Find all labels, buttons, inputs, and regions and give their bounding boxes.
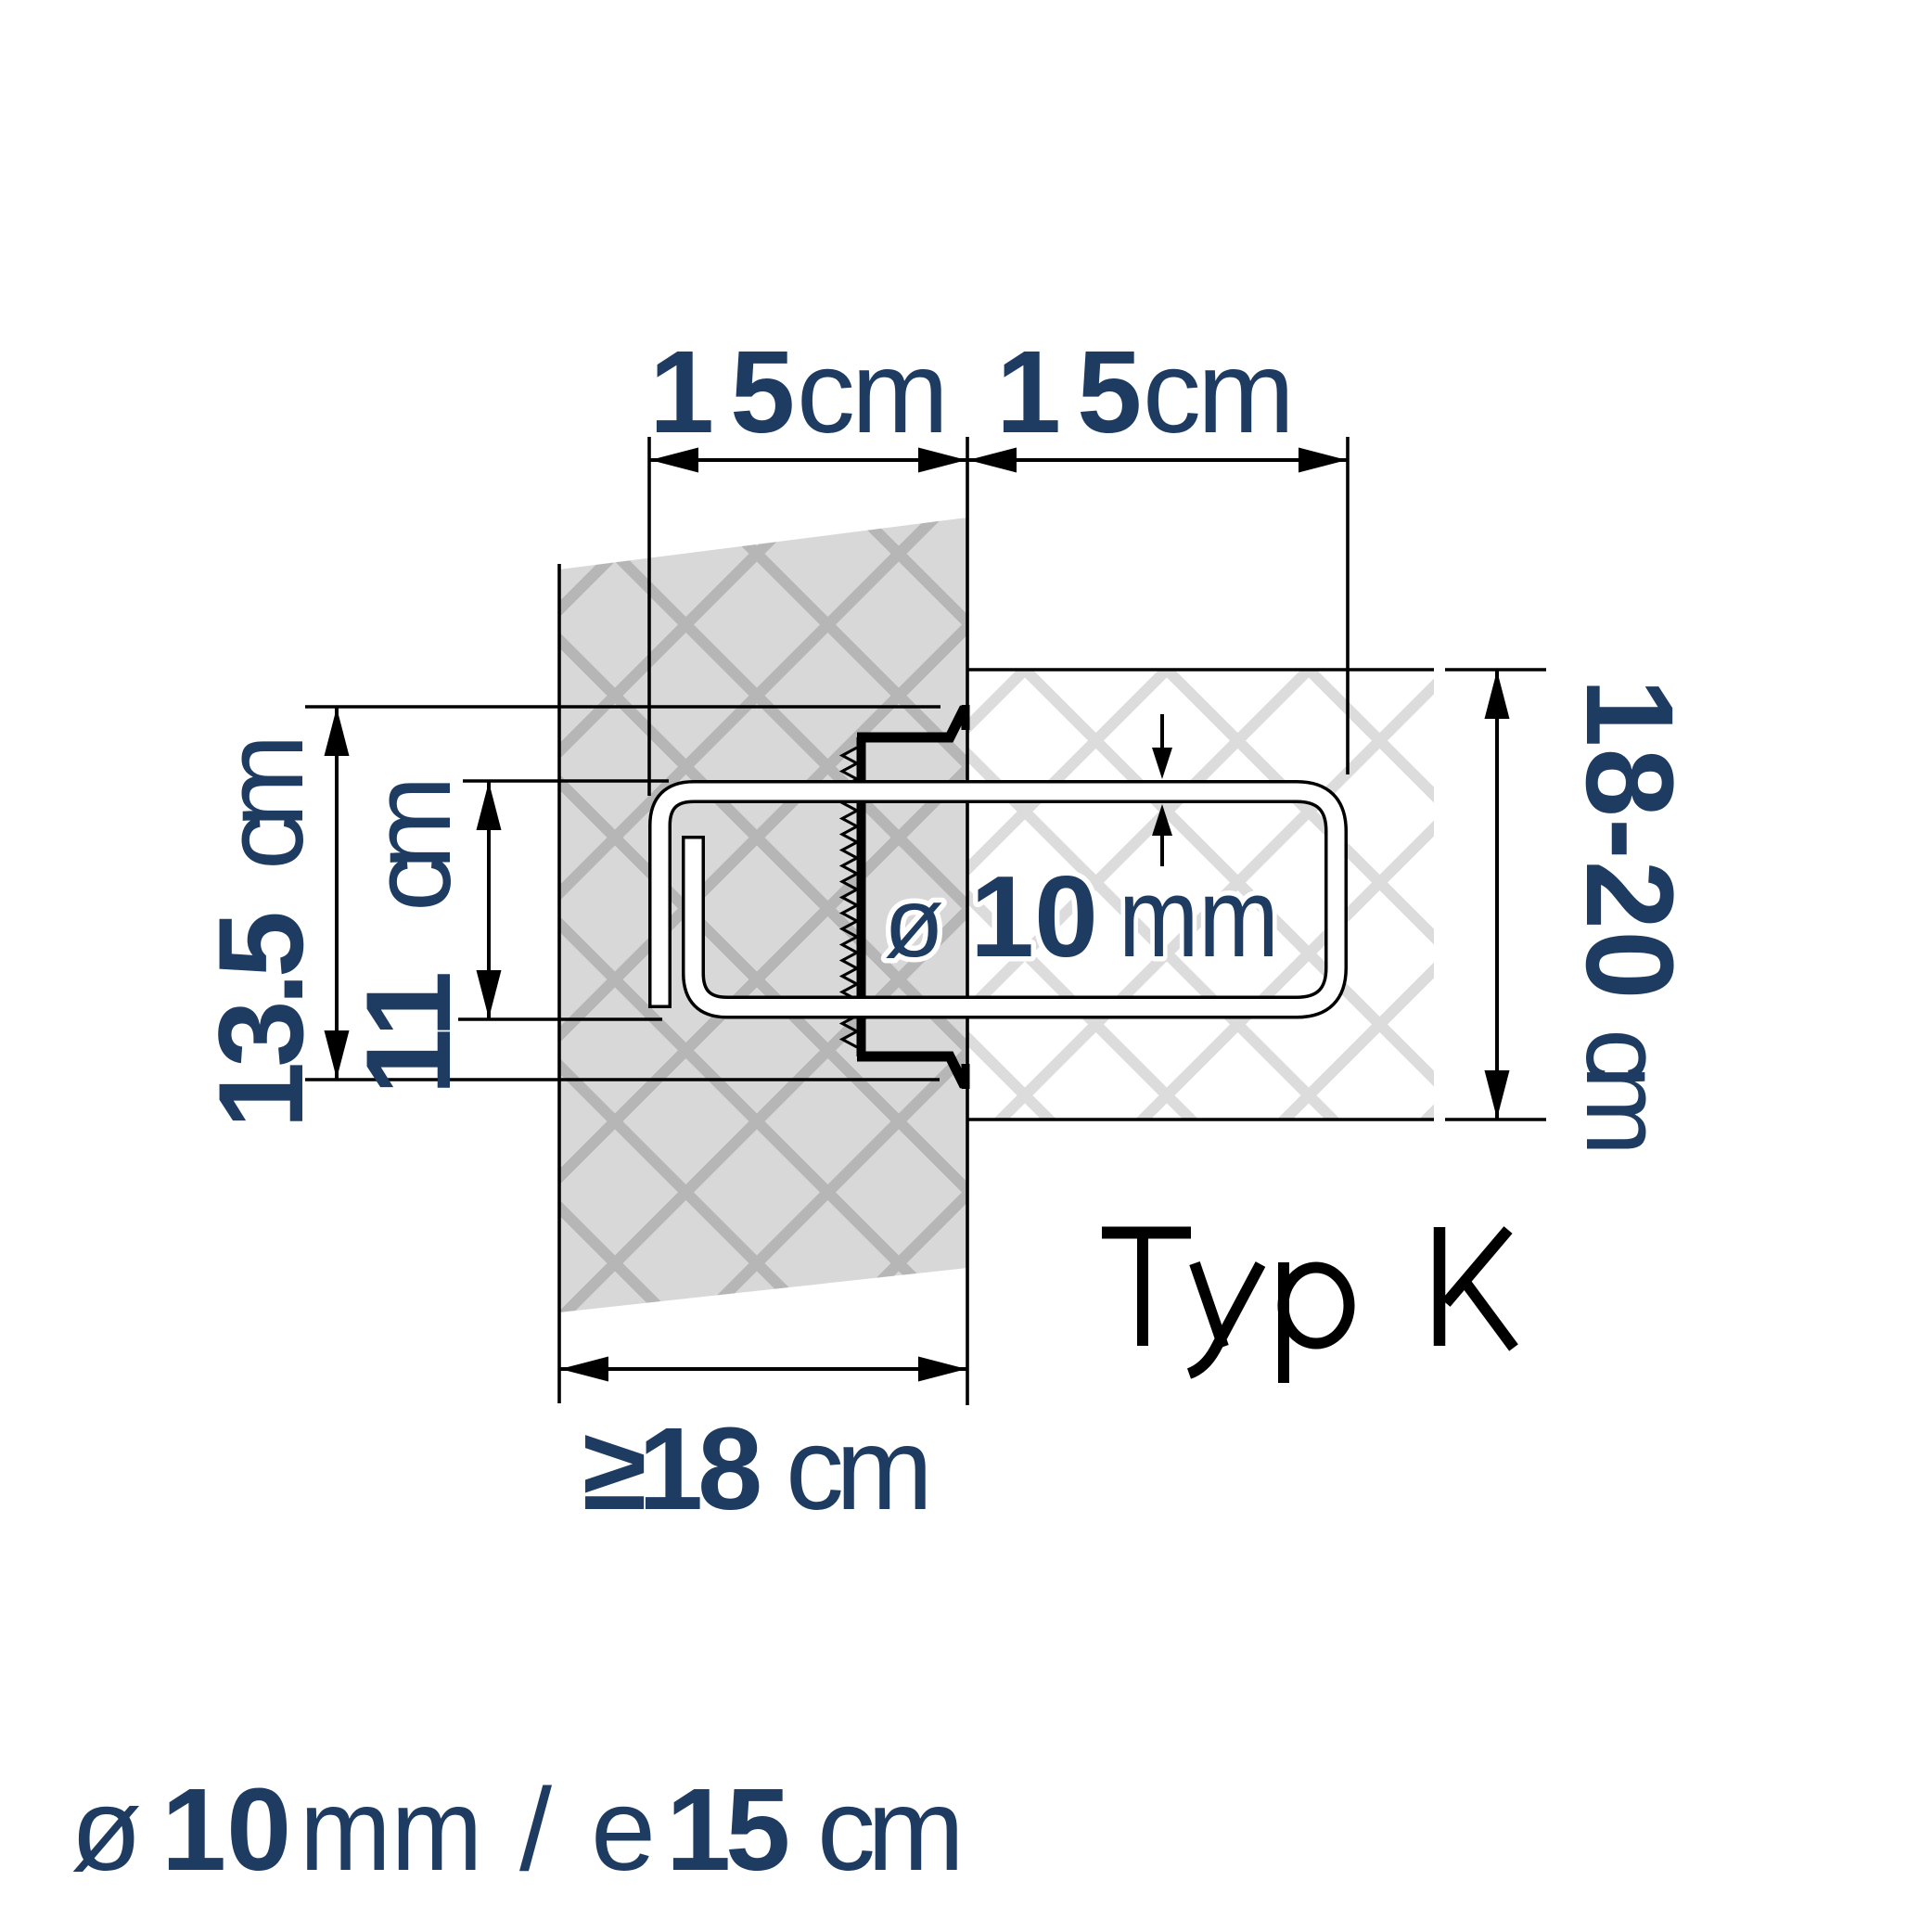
- svg-text:e: e: [591, 1764, 656, 1895]
- svg-text:15: 15: [666, 1764, 787, 1895]
- svg-text:10: 10: [970, 853, 1098, 981]
- svg-text:ø: ø: [884, 868, 944, 978]
- svg-text:18-20: 18-20: [1560, 678, 1698, 1001]
- svg-text:mm: mm: [300, 1764, 482, 1895]
- svg-text:≥: ≥: [582, 1403, 646, 1534]
- svg-text:11: 11: [340, 974, 476, 1095]
- svg-text:cm: cm: [786, 1403, 926, 1534]
- svg-text:cm: cm: [348, 783, 474, 912]
- svg-text:15: 15: [996, 326, 1158, 457]
- svg-text:13.5: 13.5: [193, 914, 328, 1129]
- svg-text:15: 15: [649, 326, 811, 457]
- svg-text:mm: mm: [1119, 854, 1279, 980]
- svg-text:10: 10: [161, 1764, 291, 1895]
- svg-text:cm: cm: [797, 326, 945, 457]
- svg-text:18: 18: [638, 1403, 760, 1534]
- svg-text:cm: cm: [1563, 1029, 1685, 1149]
- svg-text:cm: cm: [817, 1764, 957, 1895]
- svg-text:cm: cm: [200, 741, 326, 870]
- svg-text:/: /: [519, 1764, 552, 1895]
- svg-text:cm: cm: [1143, 326, 1291, 457]
- svg-text:ø: ø: [70, 1764, 142, 1895]
